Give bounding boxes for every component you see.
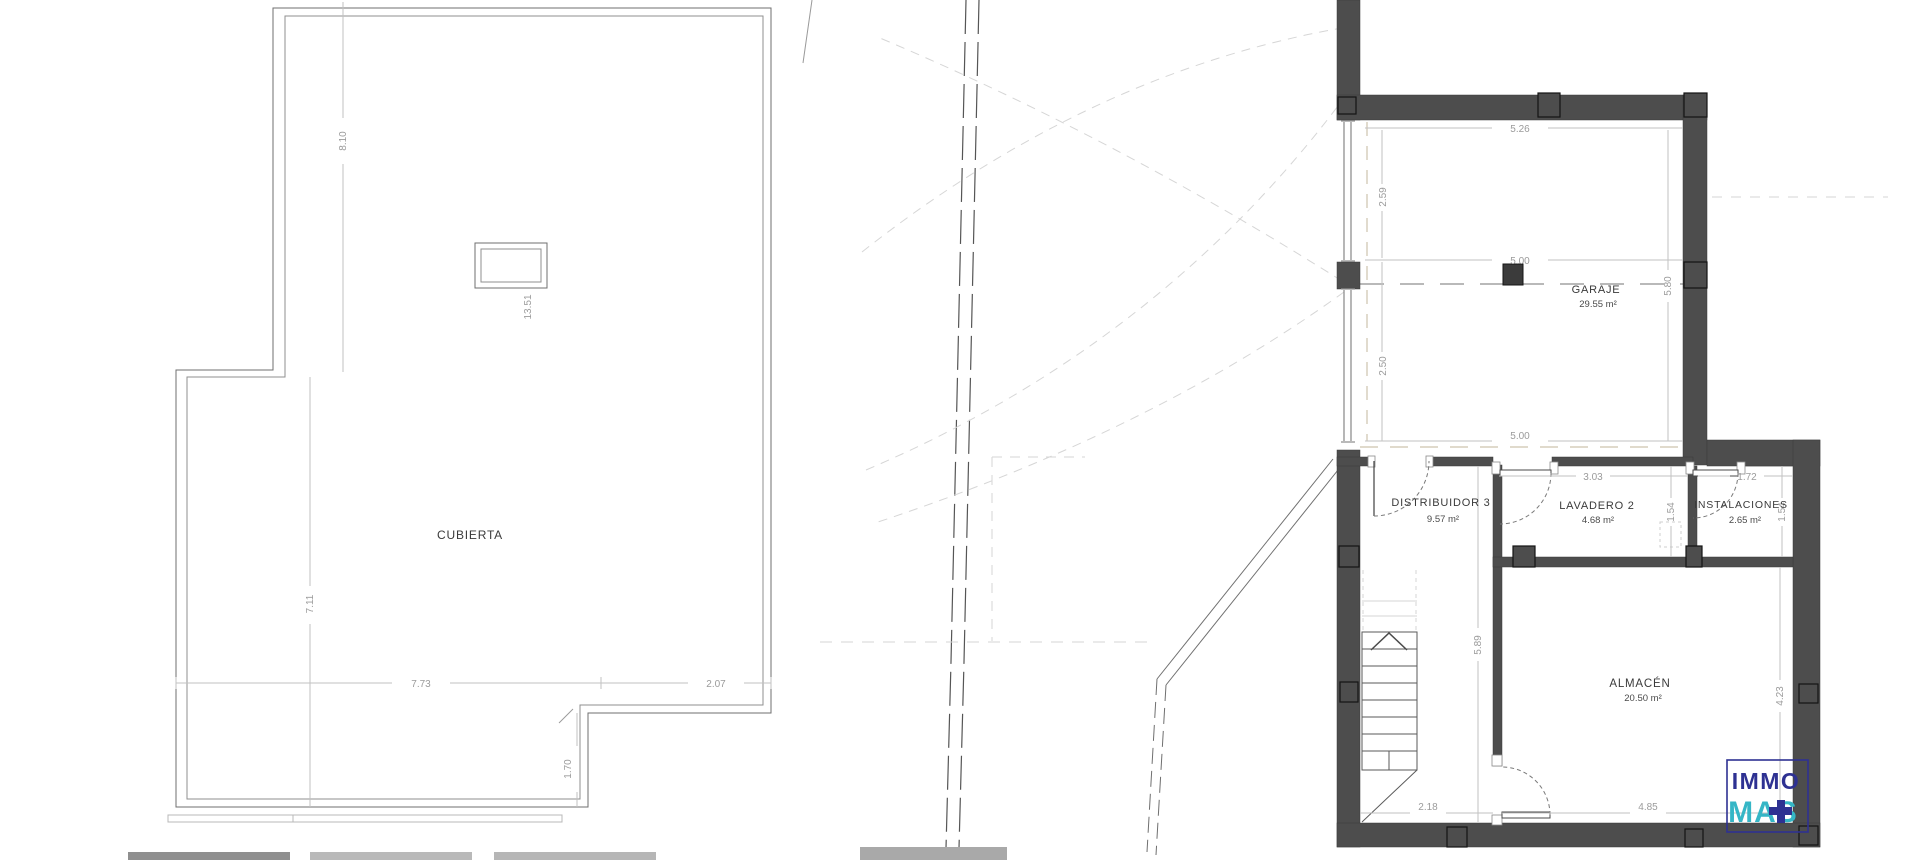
floor-plan: 5.26 2.59 5.00 2.50 5.00 5.80 3.03 1.72 … xyxy=(1337,0,1888,847)
dim-lavadero-height: 1.54 xyxy=(1666,502,1677,522)
roof-room-label: CUBIERTA xyxy=(437,528,503,542)
dim-roof-height-upper: 8.10 xyxy=(338,131,349,151)
area-lavadero: 4.68 m² xyxy=(1582,515,1614,526)
area-almacen: 20.50 m² xyxy=(1624,693,1662,704)
roof-dimension-lines xyxy=(176,2,771,807)
logo-text-immo: IMMO xyxy=(1732,768,1801,794)
scale-bar-2 xyxy=(310,852,472,860)
floor-plan-canvas: 8.10 13.51 7.11 7.73 2.07 1.70 CUBIERTA xyxy=(0,0,1920,860)
site-strip xyxy=(168,815,562,822)
scale-bar-1 xyxy=(128,852,290,860)
dim-instalaciones-width: 1.72 xyxy=(1737,472,1757,483)
stairs xyxy=(1362,570,1417,822)
dim-almacen-height: 4.23 xyxy=(1775,686,1786,706)
dim-almacen-width: 4.85 xyxy=(1638,802,1658,813)
room-instalaciones: INSTALACIONES xyxy=(1694,499,1788,511)
room-labels: GARAJE 29.55 m² DISTRIBUIDOR 3 9.57 m² L… xyxy=(1391,284,1787,704)
plan-drawing: 8.10 13.51 7.11 7.73 2.07 1.70 CUBIERTA xyxy=(0,0,1920,860)
area-instalaciones: 2.65 m² xyxy=(1729,515,1761,526)
immomas-logo: IMMO MAS xyxy=(1727,760,1808,832)
dim-garage-top: 5.26 xyxy=(1510,124,1530,135)
dim-garage-mid: 5.00 xyxy=(1510,256,1530,267)
diag-boundary-2 xyxy=(1166,465,1342,685)
dim-roof-width-main: 7.73 xyxy=(411,679,431,690)
dim-lavadero-width: 3.03 xyxy=(1583,472,1603,483)
dim-roof-width-right: 2.07 xyxy=(706,679,726,690)
dim-garage-left-lower: 2.50 xyxy=(1378,356,1389,376)
chimney-inner xyxy=(481,249,541,282)
area-distribuidor: 9.57 m² xyxy=(1427,514,1459,525)
room-almacen: ALMACÉN xyxy=(1609,677,1670,690)
corner-tick xyxy=(559,709,573,723)
room-distribuidor: DISTRIBUIDOR 3 xyxy=(1391,497,1490,509)
roof-outline-outer xyxy=(176,8,771,807)
dim-roof-notch: 1.70 xyxy=(563,759,574,779)
walls xyxy=(1337,0,1820,847)
diag-boundary-4 xyxy=(1156,685,1166,855)
area-garaje: 29.55 m² xyxy=(1579,299,1617,310)
diag-boundary-3 xyxy=(1147,679,1157,852)
dim-garage-bottom: 5.00 xyxy=(1510,431,1530,442)
stair-direction-arrow xyxy=(1371,633,1407,650)
room-lavadero: LAVADERO 2 xyxy=(1559,500,1634,512)
dim-roof-chimney: 13.51 xyxy=(523,294,534,319)
roof-plan: 8.10 13.51 7.11 7.73 2.07 1.70 CUBIERTA xyxy=(168,2,771,822)
scale-bar-3 xyxy=(494,852,656,860)
door-swing-arcs xyxy=(862,28,1344,522)
boundary-stub xyxy=(803,0,812,63)
dim-stair-width: 2.18 xyxy=(1418,802,1438,813)
garage-post xyxy=(1503,264,1523,285)
dim-garage-right: 5.80 xyxy=(1663,276,1674,296)
floor-dimension-lines xyxy=(1360,128,1793,823)
chimney-outer xyxy=(475,243,547,288)
boundary-line-2 xyxy=(959,0,979,848)
dim-roof-height-lower: 7.11 xyxy=(305,594,316,613)
diag-boundary-1 xyxy=(1157,459,1333,679)
dim-distribuidor-height: 5.89 xyxy=(1473,635,1484,655)
scale-bar-4 xyxy=(860,847,1007,860)
room-garaje: GARAJE xyxy=(1572,284,1621,296)
dim-garage-left-upper: 2.59 xyxy=(1378,187,1389,207)
